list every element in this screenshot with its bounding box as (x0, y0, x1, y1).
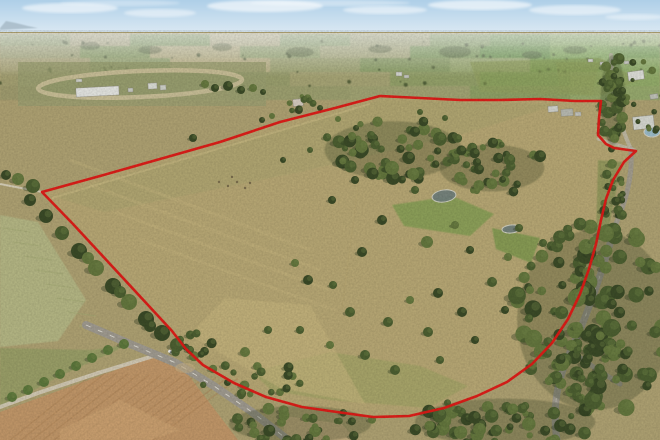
photo-grain-overlay (0, 30, 660, 440)
aerial-photo (0, 0, 660, 440)
aerial-photo-canvas (0, 0, 660, 440)
